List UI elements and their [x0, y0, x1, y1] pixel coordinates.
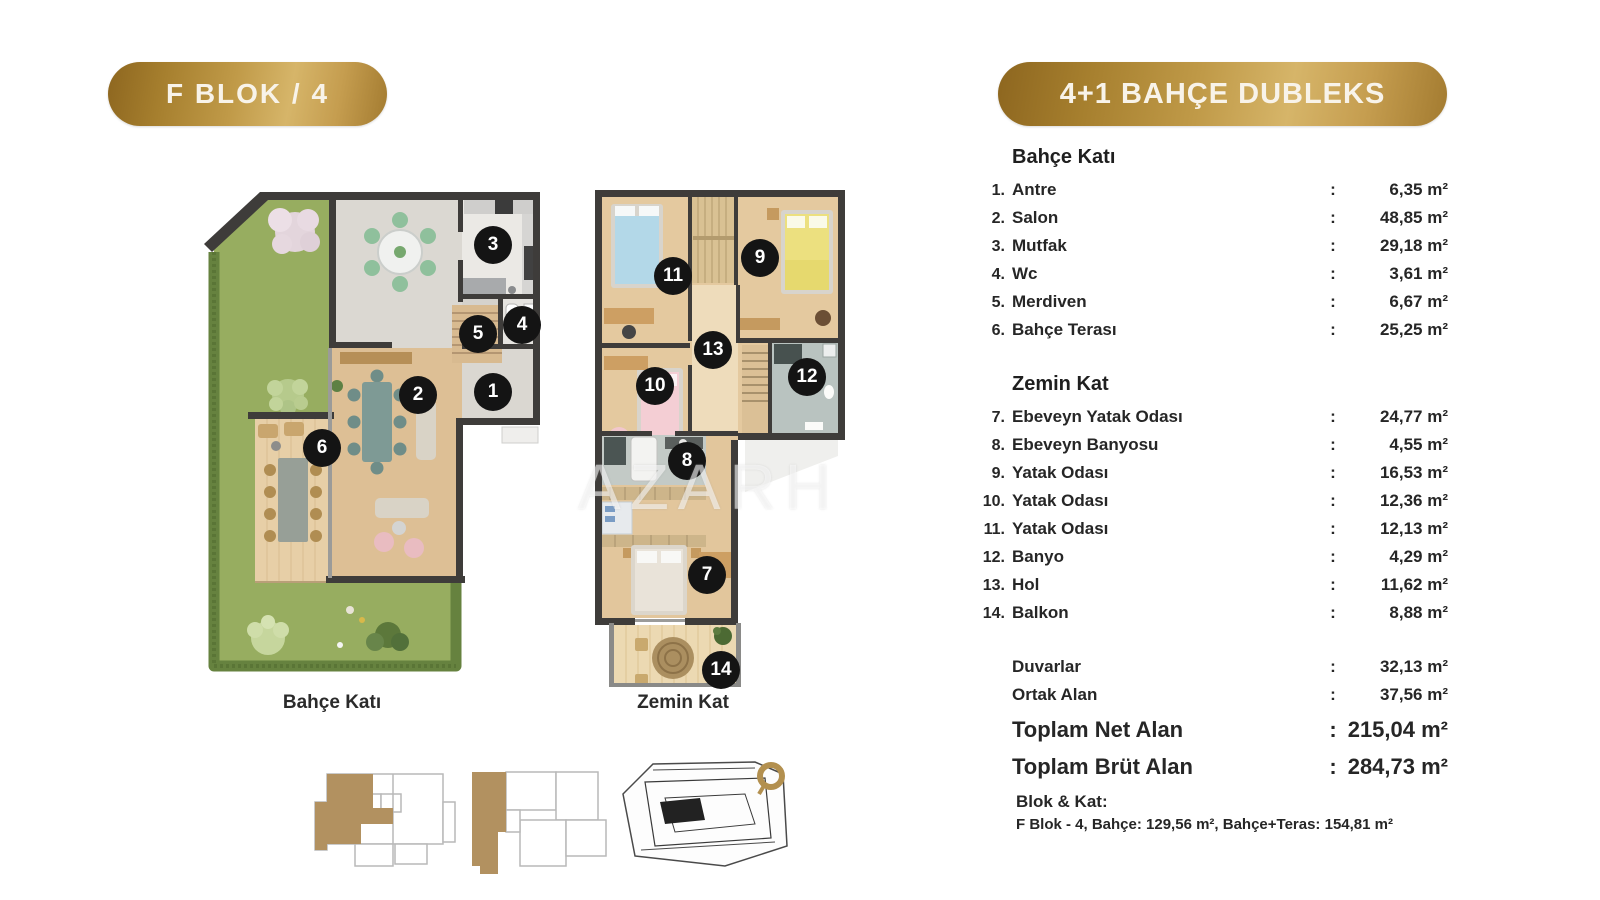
row-separator: : [1326, 487, 1340, 515]
area-row: Toplam Net Alan:215,04 m² [975, 711, 1448, 748]
room-marker-2: 2 [399, 376, 437, 414]
section-rows-zemin: 7.Ebeveyn Yatak Odası:24,77 m²8.Ebeveyn … [975, 403, 1448, 627]
row-label: Ortak Alan [975, 681, 1326, 709]
area-row: 3.Mutfak:29,18 m² [975, 232, 1448, 260]
row-number: 8. [975, 432, 1005, 460]
row-label: Ebeveyn Banyosu [1012, 431, 1326, 459]
total-rows: Toplam Net Alan:215,04 m²Toplam Brüt Ala… [975, 711, 1448, 785]
row-number: 10. [975, 488, 1005, 516]
row-number: 3. [975, 233, 1005, 261]
row-number: 1. [975, 177, 1005, 205]
area-row: 10.Yatak Odası:12,36 m² [975, 487, 1448, 515]
room-marker-6: 6 [303, 429, 341, 467]
row-label: Hol [1012, 571, 1326, 599]
row-label: Yatak Odası [1012, 459, 1326, 487]
block-kat-label: Blok & Kat: [1016, 792, 1448, 812]
row-label: Antre [1012, 176, 1326, 204]
row-separator: : [1326, 403, 1340, 431]
room-marker-5: 5 [459, 315, 497, 353]
row-label: Balkon [1012, 599, 1326, 627]
row-value: 25,25 m² [1340, 316, 1448, 344]
row-separator: : [1326, 204, 1340, 232]
row-value: 48,85 m² [1340, 204, 1448, 232]
row-label: Salon [1012, 204, 1326, 232]
unit-badge: F BLOK / 4 [108, 62, 387, 126]
row-separator: : [1326, 653, 1340, 681]
room-marker-7: 7 [688, 556, 726, 594]
row-value: 11,62 m² [1340, 571, 1448, 599]
row-value: 284,73 m² [1340, 748, 1448, 785]
row-number: 11. [975, 516, 1005, 544]
row-label: Yatak Odası [1012, 487, 1326, 515]
area-row: 11.Yatak Odası:12,13 m² [975, 515, 1448, 543]
area-row: 7.Ebeveyn Yatak Odası:24,77 m² [975, 403, 1448, 431]
row-number: 9. [975, 460, 1005, 488]
row-label: Duvarlar [975, 653, 1326, 681]
site-plan-drawing [605, 754, 795, 872]
summary-rows: Duvarlar:32,13 m²Ortak Alan:37,56 m² [975, 653, 1448, 709]
row-value: 24,77 m² [1340, 403, 1448, 431]
row-label: Mutfak [1012, 232, 1326, 260]
row-value: 6,67 m² [1340, 288, 1448, 316]
row-label: Banyo [1012, 543, 1326, 571]
block-kat-detail: F Blok - 4, Bahçe: 129,56 m², Bahçe+Tera… [1016, 816, 1448, 833]
salon-floor [330, 348, 462, 582]
site-plan-icon [605, 754, 795, 877]
floor-plan-zemin-kat-drawing [595, 190, 845, 690]
section-title-zemin-kat: Zemin Kat [1012, 373, 1448, 396]
area-row: 6.Bahçe Terası:25,25 m² [975, 316, 1448, 344]
unit-badge-label: F BLOK / 4 [166, 78, 329, 110]
room-marker-4: 4 [503, 306, 541, 344]
apartment-type-label: 4+1 BAHÇE DUBLEKS [1060, 78, 1386, 111]
row-value: 6,35 m² [1340, 176, 1448, 204]
row-label: Ebeveyn Yatak Odası [1012, 403, 1326, 431]
row-number: 13. [975, 572, 1005, 600]
section-rows-bahce: 1.Antre:6,35 m²2.Salon:48,85 m²3.Mutfak:… [975, 176, 1448, 344]
row-label: Toplam Brüt Alan [975, 748, 1326, 785]
row-separator: : [1326, 599, 1340, 627]
room-marker-3: 3 [474, 226, 512, 264]
room-marker-13: 13 [694, 331, 732, 369]
row-separator: : [1326, 459, 1340, 487]
plan-label-zemin-kat: Zemin Kat [583, 692, 783, 714]
room-marker-8: 8 [668, 442, 706, 480]
area-row: 1.Antre:6,35 m² [975, 176, 1448, 204]
row-number: 2. [975, 205, 1005, 233]
row-separator: : [1326, 711, 1340, 748]
room-marker-10: 10 [636, 367, 674, 405]
row-label: Wc [1012, 260, 1326, 288]
section-title-bahce-kati: Bahçe Katı [1012, 146, 1448, 169]
row-separator: : [1326, 260, 1340, 288]
area-row: 5.Merdiven:6,67 m² [975, 288, 1448, 316]
row-value: 215,04 m² [1340, 711, 1448, 748]
row-separator: : [1326, 748, 1340, 785]
room-marker-12: 12 [788, 358, 826, 396]
row-value: 12,13 m² [1340, 515, 1448, 543]
row-separator: : [1326, 515, 1340, 543]
area-row: 8.Ebeveyn Banyosu:4,55 m² [975, 431, 1448, 459]
row-separator: : [1326, 681, 1340, 709]
area-row: Toplam Brüt Alan:284,73 m² [975, 748, 1448, 785]
area-row: 13.Hol:11,62 m² [975, 571, 1448, 599]
row-value: 37,56 m² [1340, 681, 1448, 709]
row-number: 4. [975, 261, 1005, 289]
keyplan-zemin-drawing [462, 762, 612, 874]
page: F BLOK / 4 4+1 BAHÇE DUBLEKS [0, 0, 1600, 900]
floor-plan-zemin-kat: 7891011121314 [595, 190, 845, 690]
row-separator: : [1326, 543, 1340, 571]
row-separator: : [1326, 431, 1340, 459]
row-label: Yatak Odası [1012, 515, 1326, 543]
row-value: 32,13 m² [1340, 653, 1448, 681]
keyplan-bahce-kati [297, 762, 457, 879]
area-row: 9.Yatak Odası:16,53 m² [975, 459, 1448, 487]
wardrobe [692, 197, 736, 283]
row-value: 12,36 m² [1340, 487, 1448, 515]
room-marker-9: 9 [741, 239, 779, 277]
area-row: Ortak Alan:37,56 m² [975, 681, 1448, 709]
row-value: 29,18 m² [1340, 232, 1448, 260]
area-row: Duvarlar:32,13 m² [975, 653, 1448, 681]
row-value: 8,88 m² [1340, 599, 1448, 627]
room-marker-14: 14 [702, 651, 740, 689]
row-value: 3,61 m² [1340, 260, 1448, 288]
row-separator: : [1326, 316, 1340, 344]
keyplan-zemin-kat [462, 762, 612, 879]
row-separator: : [1326, 288, 1340, 316]
room-marker-11: 11 [654, 257, 692, 295]
blossom-tree [268, 208, 320, 254]
row-number: 6. [975, 317, 1005, 345]
row-separator: : [1326, 571, 1340, 599]
area-table: Bahçe Katı 1.Antre:6,35 m²2.Salon:48,85 … [975, 146, 1448, 833]
area-row: 12.Banyo:4,29 m² [975, 543, 1448, 571]
row-value: 4,55 m² [1340, 431, 1448, 459]
room-marker-1: 1 [474, 373, 512, 411]
row-label: Merdiven [1012, 288, 1326, 316]
row-value: 4,29 m² [1340, 543, 1448, 571]
row-number: 12. [975, 544, 1005, 572]
area-row: 2.Salon:48,85 m² [975, 204, 1448, 232]
area-row: 14.Balkon:8,88 m² [975, 599, 1448, 627]
row-separator: : [1326, 232, 1340, 260]
keyplan-bahce-drawing [297, 762, 457, 874]
row-label: Toplam Net Alan [975, 711, 1326, 748]
floor-plan-bahce-kati: 123456 [200, 190, 540, 680]
row-label: Bahçe Terası [1012, 316, 1326, 344]
row-separator: : [1326, 176, 1340, 204]
apartment-type-badge: 4+1 BAHÇE DUBLEKS [998, 62, 1447, 126]
stairs-zemin [742, 345, 768, 433]
row-number: 5. [975, 289, 1005, 317]
row-value: 16,53 m² [1340, 459, 1448, 487]
plan-label-bahce-kati: Bahçe Katı [232, 692, 432, 714]
row-number: 14. [975, 600, 1005, 628]
row-number: 7. [975, 404, 1005, 432]
area-row: 4.Wc:3,61 m² [975, 260, 1448, 288]
